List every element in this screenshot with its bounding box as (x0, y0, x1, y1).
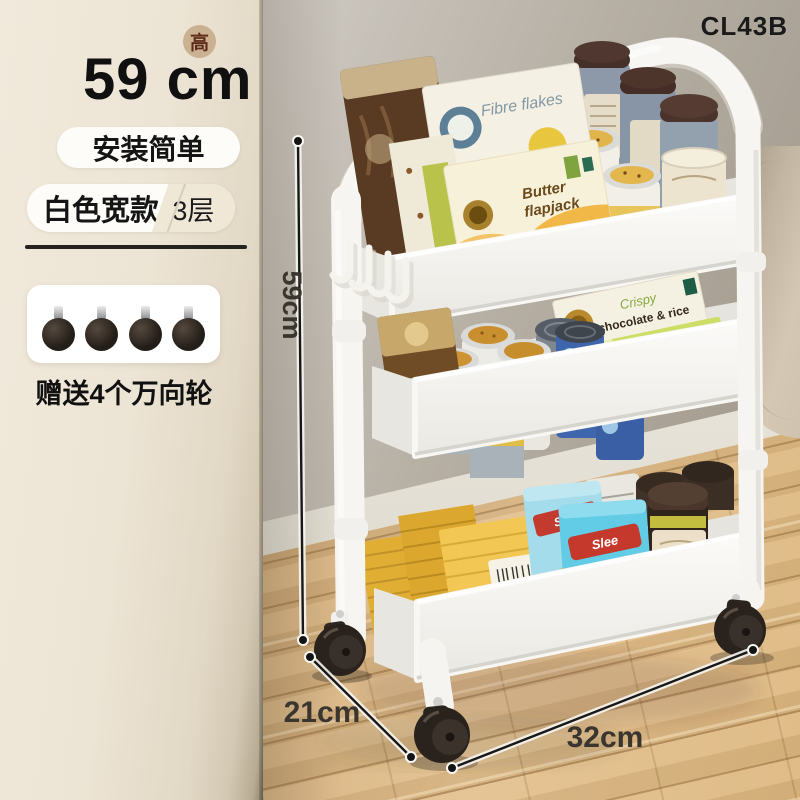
caster-tire (129, 318, 162, 351)
tag-tiers-label: 3层 (152, 184, 235, 232)
caster-wheel-icon (171, 306, 207, 351)
gift-caption: 赠送4个万向轮 (18, 372, 230, 411)
tag-easy-install: 安装简单 (57, 127, 240, 168)
divider-rule (25, 245, 247, 249)
tag-easy-install-label: 安装简单 (92, 128, 204, 168)
tag-style-tiers: 白色宽款 3层 (27, 184, 235, 232)
caster-wheel-icon (84, 306, 120, 351)
gift-wheels-card (27, 285, 220, 363)
caster-wheel-icon (40, 306, 76, 351)
caster-wheel-icon (127, 306, 163, 351)
sofa-seam (752, 160, 794, 420)
caster-tire (42, 318, 75, 351)
sofa-corner (742, 146, 800, 438)
product-image: OATMEAL (0, 0, 800, 800)
tag-color-label: 白色宽款 (27, 187, 159, 229)
wall-corner-shadow (262, 0, 342, 800)
panel-edge (259, 0, 263, 800)
caster-tire (85, 318, 118, 351)
caster-tire (172, 318, 205, 351)
product-code: CL43B (701, 11, 788, 42)
height-title: 59 cm (83, 46, 252, 113)
